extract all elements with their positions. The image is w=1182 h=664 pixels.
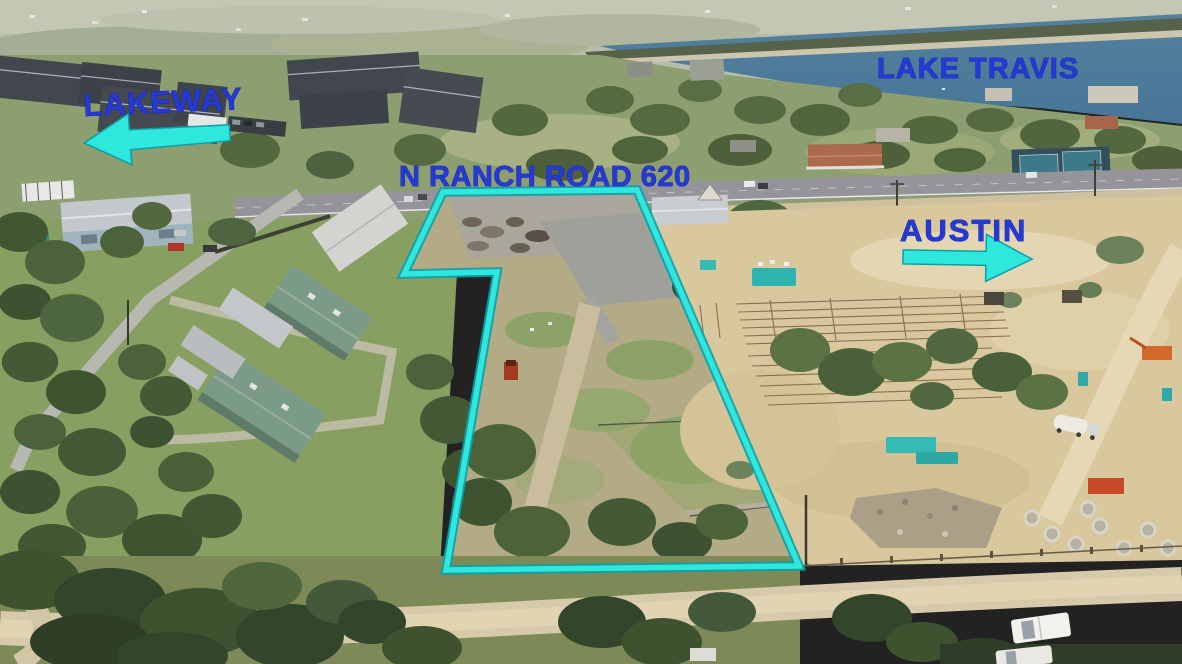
red-tile-roof-building [806, 143, 884, 169]
red-truck [168, 243, 184, 251]
ranch-road-label: N RANCH ROAD 620 [399, 161, 691, 193]
aerial-listing-photo: LAKEWAY LAKE TRAVIS N RANCH ROAD 620 AUS… [0, 0, 1182, 664]
porta-potty-2 [1162, 388, 1172, 401]
lake-travis-label: LAKE TRAVIS [877, 53, 1079, 85]
silver-car [174, 230, 186, 236]
red-machine [1088, 478, 1124, 494]
austin-label: AUSTIN [900, 213, 1027, 248]
mobile-home [21, 180, 74, 202]
red-tractor [504, 360, 518, 380]
dark-equipment [984, 292, 1004, 305]
lakeway-label: LAKEWAY [83, 81, 244, 123]
white-pickup-truck [1011, 612, 1072, 644]
white-van [690, 648, 716, 661]
dark-equipment-2 [1062, 290, 1082, 303]
porta-potty [1078, 372, 1088, 386]
